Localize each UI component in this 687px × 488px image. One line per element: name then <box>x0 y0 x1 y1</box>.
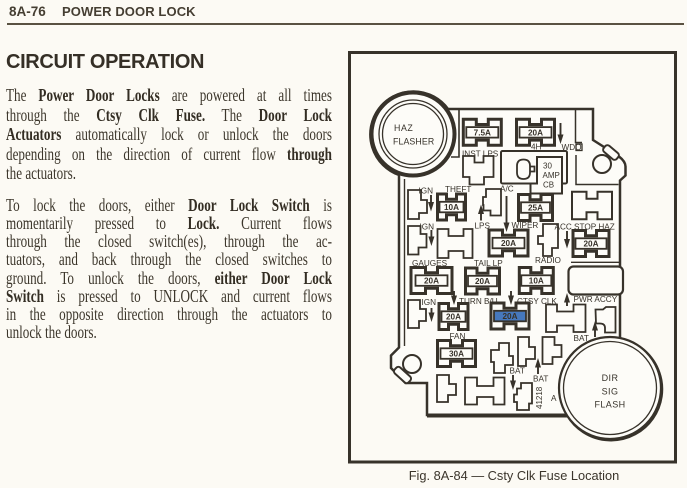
svg-text:20A: 20A <box>583 240 598 249</box>
svg-text:WDO: WDO <box>562 143 582 152</box>
svg-text:IGN: IGN <box>419 187 434 196</box>
svg-text:BAT: BAT <box>510 367 525 376</box>
svg-text:20A: 20A <box>502 312 517 321</box>
svg-text:GAUGES: GAUGES <box>412 259 448 268</box>
svg-text:10A: 10A <box>444 203 459 212</box>
svg-text:INST LPS: INST LPS <box>462 149 499 158</box>
svg-text:AMP: AMP <box>543 171 560 180</box>
svg-text:41218: 41218 <box>535 386 544 409</box>
svg-text:7.5A: 7.5A <box>474 128 491 137</box>
svg-text:IGN: IGN <box>422 298 437 307</box>
svg-text:BAT: BAT <box>574 334 589 343</box>
svg-text:30A: 30A <box>449 350 464 359</box>
svg-text:4H: 4H <box>531 143 542 152</box>
svg-text:FLASHER: FLASHER <box>393 137 434 147</box>
svg-text:IGN: IGN <box>420 222 435 231</box>
svg-text:A/C: A/C <box>500 185 514 194</box>
svg-text:20A: 20A <box>501 239 516 248</box>
svg-text:30: 30 <box>543 162 552 171</box>
svg-text:TURN B/U: TURN B/U <box>459 297 498 306</box>
svg-text:ACC STOP HAZ: ACC STOP HAZ <box>555 223 615 232</box>
svg-text:PWR ACCY: PWR ACCY <box>574 295 618 304</box>
svg-text:WIPER: WIPER <box>512 221 539 230</box>
svg-text:LPS: LPS <box>475 222 491 231</box>
svg-text:20A: 20A <box>528 128 543 137</box>
svg-text:BAT: BAT <box>533 375 548 384</box>
svg-text:CTSY CLK: CTSY CLK <box>517 297 557 306</box>
svg-text:RADIO: RADIO <box>535 256 561 265</box>
svg-text:FAN: FAN <box>450 332 466 341</box>
svg-text:25A: 25A <box>528 204 543 213</box>
svg-text:Fig. 8A-84 — Csty Clk Fuse Loc: Fig. 8A-84 — Csty Clk Fuse Location <box>409 468 620 483</box>
svg-text:TAIL LP: TAIL LP <box>474 259 503 268</box>
svg-text:DIR: DIR <box>602 373 619 383</box>
svg-text:HAZ: HAZ <box>394 123 413 133</box>
svg-text:SIG: SIG <box>602 387 619 397</box>
svg-text:CB: CB <box>543 181 554 190</box>
svg-text:20A: 20A <box>475 277 490 286</box>
svg-text:10A: 10A <box>529 277 544 286</box>
svg-text:20A: 20A <box>446 313 461 322</box>
svg-text:FLASH: FLASH <box>594 400 625 410</box>
svg-text:A: A <box>551 394 557 403</box>
svg-text:THEFT: THEFT <box>445 185 471 194</box>
svg-text:20A: 20A <box>424 277 439 286</box>
